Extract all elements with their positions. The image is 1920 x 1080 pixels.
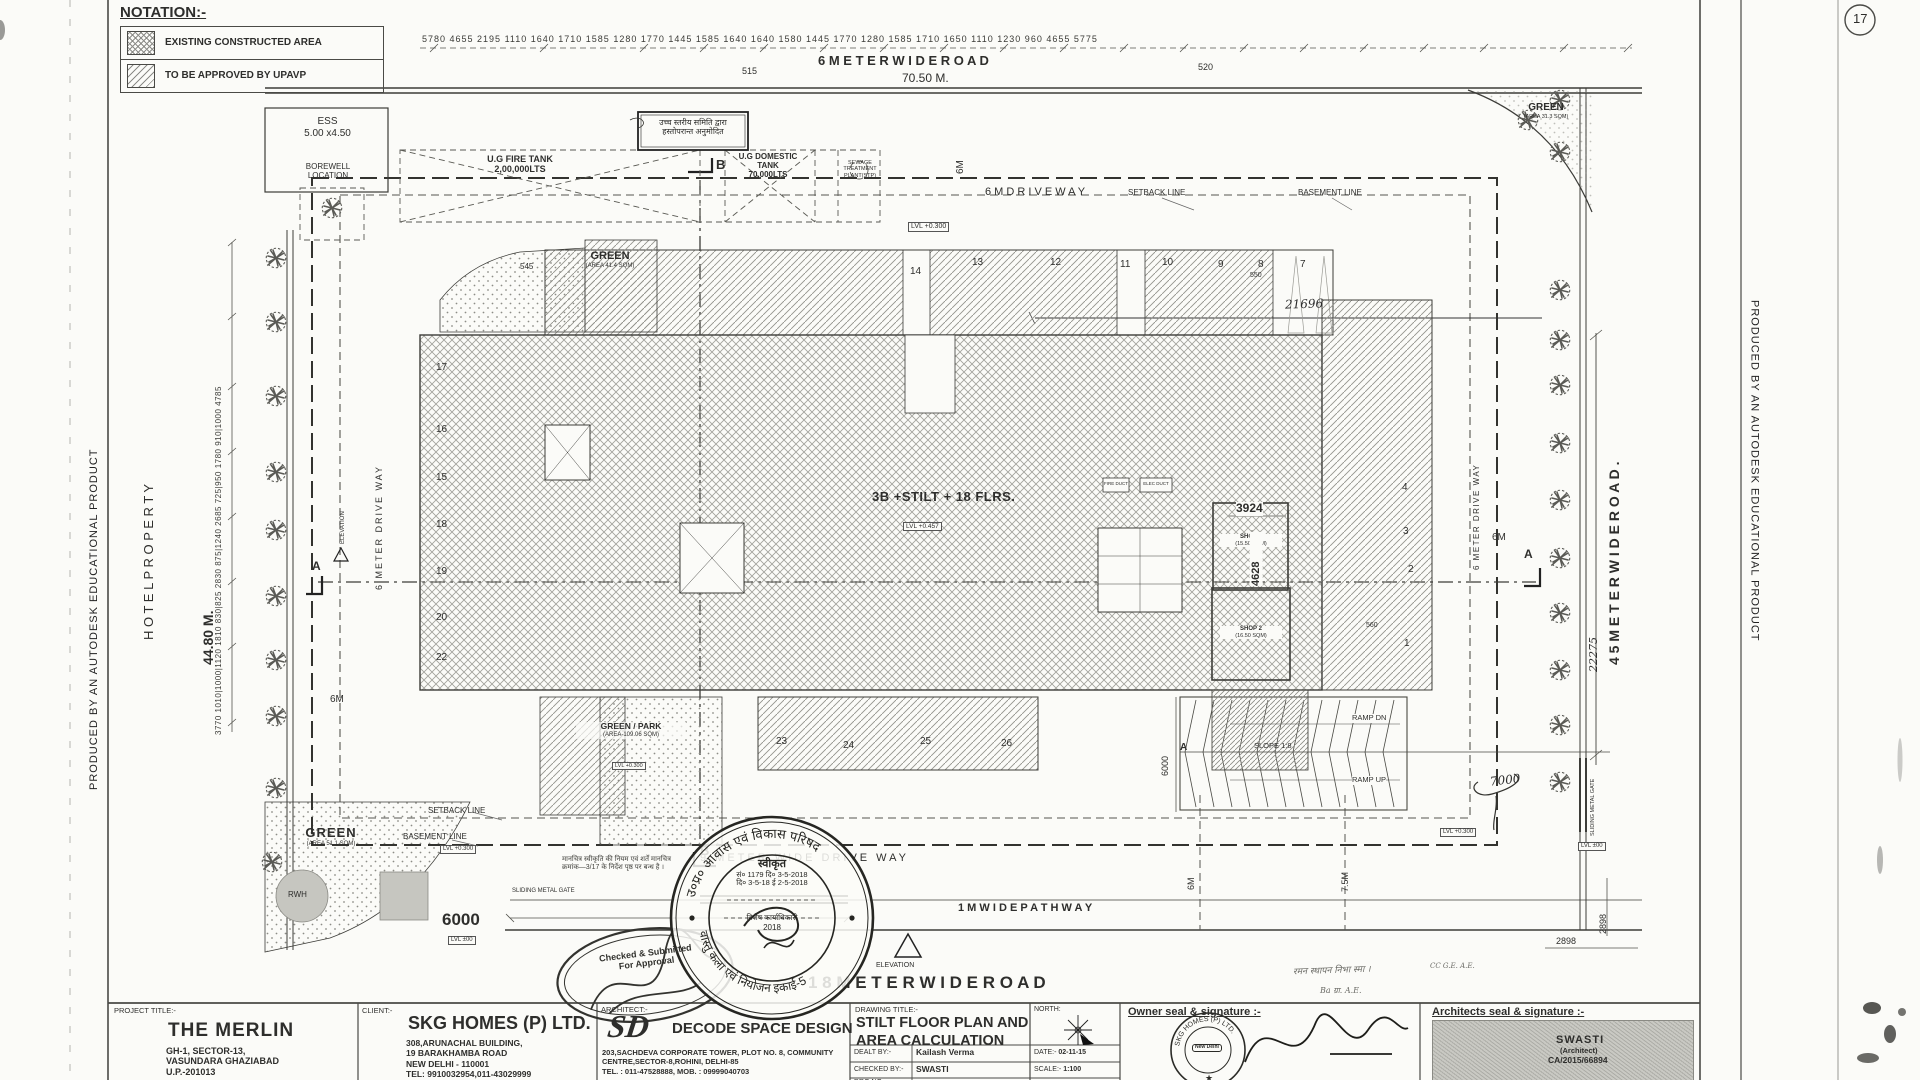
elec-duct-label: ELEC DUCT <box>1143 481 1169 486</box>
level-chip: LVL ±00 <box>448 936 476 945</box>
owner-seal-label: Owner seal & signature :- <box>1128 1006 1261 1019</box>
handwritten-22275: 22275 <box>1588 608 1601 672</box>
north-compass <box>1064 1015 1094 1045</box>
autodesk-watermark-left: PRODUCED BY AN AUTODESK EDUCATIONAL PROD… <box>88 290 101 790</box>
level-chip: LVL +0.300 <box>440 845 476 854</box>
road-top-label: 6 M E T E R W I D E R O A D <box>818 54 989 69</box>
section-a-right: A <box>1524 548 1533 562</box>
unit-number: 8 <box>1258 259 1264 271</box>
drive-way-top-label: 6 M D R I V E W A Y <box>985 186 1085 199</box>
date-row: DATE:- 02-11-15 <box>1034 1049 1086 1057</box>
owner-seal-center: New Delhi <box>1192 1044 1222 1052</box>
pencil-note: Ba ग्रा. A.E. <box>1320 986 1362 995</box>
architect-logo: SD <box>605 1008 651 1045</box>
dim-6m-top: 6M <box>955 132 967 174</box>
project-address: GH-1, SECTOR-13, VASUNDARA GHAZIABAD U.P… <box>166 1046 279 1077</box>
legend-swatch-existing <box>127 31 155 55</box>
dim-75m: 7.5M <box>1340 846 1350 892</box>
dim-4628: 4628 <box>1250 532 1263 586</box>
drawing-title: STILT FLOOR PLAN AND AREA CALCULATION <box>856 1014 1028 1050</box>
building-label: 3B +STILT + 18 FLRS. <box>872 490 1015 505</box>
unit-number: 1 <box>1404 638 1410 650</box>
green-park-label: GREEN / PARK (AREA-109.06 SQM) <box>576 722 686 739</box>
architect-address: 203,SACHDEVA CORPORATE TOWER, PLOT NO. 8… <box>602 1048 833 1076</box>
drawing-sheet: 17 NOTATION:- EXISTING CONSTRUCTED AREA … <box>0 0 1920 1080</box>
section-a-left: A <box>312 560 321 574</box>
hindi-approval-box: उच्च स्तरीय समिति द्वाराहस्तोपरान्त अनुम… <box>640 118 746 136</box>
unit-number: 17 <box>436 362 447 374</box>
unit-number: 2 <box>1408 564 1414 576</box>
section-a-ramp: A <box>1180 742 1187 754</box>
legend-label: EXISTING CONSTRUCTED AREA <box>165 37 322 49</box>
legend-label: TO BE APPROVED BY UPAVP <box>165 70 306 82</box>
unit-number: 24 <box>843 740 854 752</box>
unit-number: 25 <box>920 736 931 748</box>
ramp-up-label: RAMP UP <box>1352 776 1386 785</box>
architects-seal-reg: CA/2015/66894 <box>1548 1056 1608 1066</box>
unit-number: 12 <box>1050 257 1061 269</box>
section-b-top: B <box>716 158 725 173</box>
architects-seal-name: SWASTI <box>1556 1034 1604 1047</box>
unit-number: 15 <box>436 472 447 484</box>
drive-way-right-label: 6 METER DRIVE WAY <box>1472 430 1481 570</box>
unit-number: 19 <box>436 566 447 578</box>
unit-number: 22 <box>436 652 447 664</box>
handwritten-21696: 21696 <box>1285 297 1324 312</box>
dim-6000-gate: 6000 <box>442 910 480 930</box>
unit-number: 4 <box>1402 482 1408 494</box>
sliding-gate-right-label: SLIDING METAL GATE <box>1590 752 1596 836</box>
scale-row: SCALE:- 1:100 <box>1034 1066 1081 1074</box>
sanction-stamp-center-text: स्वीकृत सं० 1179 दि० 3-5-2018 दि० 3-5-18… <box>702 858 842 932</box>
setback-line-top-label: SETBACK LINE <box>1128 188 1185 197</box>
unit-number: 13 <box>972 257 983 269</box>
dim-550: 550 <box>1250 272 1262 280</box>
unit-number: 26 <box>1001 738 1012 750</box>
pathway-label: 1 M W I D E P A T H W A Y <box>958 902 1092 915</box>
project-title-label: PROJECT TITLE:- <box>114 1007 176 1016</box>
dim-545: 545 <box>520 262 533 271</box>
architects-seal-label: Architects seal & signature :- <box>1432 1006 1584 1019</box>
ess-label: ESS5.00 x4.50 <box>280 116 375 139</box>
client-label: CLIENT:- <box>362 1007 392 1016</box>
dim-6m-right: 6M <box>1492 532 1506 544</box>
unit-number: 20 <box>436 612 447 624</box>
elevation-marker-label: ELEVATION <box>876 962 914 970</box>
hotel-property-label: H O T E L P R O P E R T Y <box>142 350 157 640</box>
borewell-label: BOREWELLLOCATION <box>288 162 368 180</box>
dim-3924: 3924 <box>1236 502 1263 516</box>
shop-2-label: SHOP 2 (16.50 SQM) <box>1220 626 1282 639</box>
unit-number: 16 <box>436 424 447 436</box>
level-chip: LVL +0.300 <box>908 222 949 232</box>
dim-520: 520 <box>1198 62 1213 72</box>
architect-name: DECODE SPACE DESIGN <box>672 1020 853 1037</box>
unit-number: 3 <box>1403 526 1409 538</box>
notation-title: NOTATION:- <box>120 4 206 21</box>
dim-6m-bottom: 6M <box>1186 850 1196 890</box>
level-chip: LVL +0.300 <box>612 762 646 770</box>
dim-6m-left: 6M <box>330 694 344 706</box>
road-bottom-label: 1 8 M E T E R W I D E R O A D <box>808 973 1046 993</box>
elevation-left-label: ELEVATION <box>340 488 347 544</box>
unit-number: 9 <box>1218 259 1224 271</box>
building-level-chip: LVL +0.457 <box>903 522 942 531</box>
road-top-length: 70.50 M. <box>902 72 949 86</box>
unit-number: 7 <box>1300 259 1306 271</box>
pencil-note: CC G.E. A.E. <box>1430 962 1475 970</box>
basement-line-bottom-label: BASEMENT LINE <box>403 832 467 841</box>
unit-number: 18 <box>436 519 447 531</box>
ramp-dn-label: RAMP DN <box>1352 714 1386 723</box>
unit-number: 14 <box>910 266 921 278</box>
ramp-linework <box>1180 690 1610 810</box>
dim-2898-vert: 2898 <box>1598 882 1608 934</box>
green-4-label: GREEN (AREA 51.1 SQM) <box>286 826 376 848</box>
setback-line-bottom-label: SETBACK LINE <box>428 806 485 815</box>
basement-line-top-label: BASEMENT LINE <box>1298 188 1362 197</box>
dealt-by-label: DEALT BY:- <box>854 1049 891 1057</box>
autodesk-watermark-right: PRODUCED BY AN AUTODESK EDUCATIONAL PROD… <box>1748 300 1761 780</box>
unit-number: 23 <box>776 736 787 748</box>
top-dimension-chain: 5780 4655 2195 1110 1640 1710 1585 1280 … <box>422 34 1632 44</box>
fire-tank-label: U.G FIRE TANK2,00,000LTS <box>455 154 585 175</box>
dealt-by-value: Kailash Verma <box>916 1048 974 1058</box>
domestic-tank-label: U.G DOMESTICTANK70,000LTS <box>722 152 814 180</box>
checked-by-value: SWASTI <box>916 1065 949 1075</box>
level-chip: LVL +0.300 <box>1440 828 1476 837</box>
fire-duct-label: FIRE DUCT <box>1104 481 1128 486</box>
checked-by-label: CHECKED BY:- <box>854 1066 903 1074</box>
level-chip: LVL ±00 <box>1578 842 1606 851</box>
dim-6000-ramp: 6000 <box>1160 718 1170 776</box>
project-name: THE MERLIN <box>168 1020 294 1042</box>
page-number: 17 <box>1853 12 1867 27</box>
legend-swatch-proposed <box>127 64 155 88</box>
elevation-marker-number: 1 <box>904 941 909 951</box>
green-1-label: GREEN (AREA 41.4 SQM) <box>560 250 660 270</box>
green-2-label: GREEN (AREA 31.3 SQM) <box>1506 102 1586 120</box>
client-name: SKG HOMES (P) LTD. <box>408 1013 591 1034</box>
client-address: 308,ARUNACHAL BUILDING, 19 BARAKHAMBA RO… <box>406 1038 531 1080</box>
stp-label: SEWAGETREATMENTPLANT(STP) <box>838 160 882 179</box>
unit-number: 10 <box>1162 257 1173 269</box>
left-dimension-chain: 3770 1010|1000|1120 1810 830|825 2830 87… <box>214 240 223 735</box>
slope-label: SLOPE 1:8 <box>1254 742 1292 751</box>
dim-515: 515 <box>742 66 757 76</box>
sliding-gate-bottom-left-label: SLIDING METAL GATE <box>512 888 575 895</box>
notation-legend: EXISTING CONSTRUCTED AREA TO BE APPROVED… <box>120 26 384 93</box>
rwh-label: RWH <box>288 890 307 899</box>
north-label: NORTH: <box>1034 1006 1061 1014</box>
hindi-note: मानचित्र स्वीकृति की नियम एवं शर्तें मान… <box>562 856 671 872</box>
dim-2898-horiz: 2898 <box>1556 936 1576 946</box>
unit-number: 11 <box>1120 259 1130 271</box>
dim-560: 560 <box>1366 622 1378 630</box>
road-right-label: 4 5 M E T E R W I D E R O A D . <box>1606 345 1622 665</box>
drive-way-left-label: 6 METER DRIVE WAY <box>374 430 384 590</box>
